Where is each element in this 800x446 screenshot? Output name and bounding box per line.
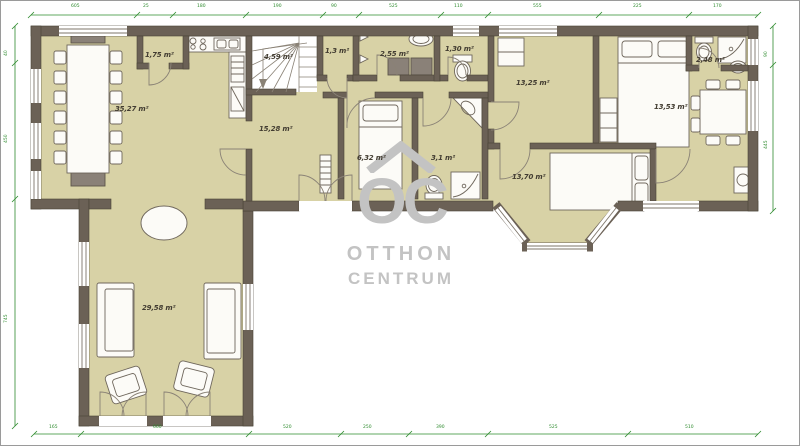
dim-top-4: 190 [273, 4, 282, 9]
living-sofa-right [204, 283, 241, 359]
dim-bottom-6: 525 [549, 425, 558, 430]
bathroom-shower-icon [451, 172, 480, 199]
room-label-room-right: 13,53 m² [654, 103, 687, 111]
dim-bottom-7: 510 [685, 425, 694, 430]
room-label-bathroom2: 2,48 m² [696, 56, 725, 64]
kitchen-sink-icon [214, 38, 240, 50]
dim-top-9: 225 [633, 4, 642, 9]
room-label-hall: 15,28 m² [259, 125, 292, 133]
dim-top-1: 605 [71, 4, 80, 9]
dim-top-7: 110 [454, 4, 463, 9]
room-label-bedroom1: 13,25 m² [516, 79, 549, 87]
room-label-closet: 1,3 m² [325, 47, 349, 55]
room-label-dining-kitchen: 35,27 m² [115, 105, 148, 113]
bedroom1-wardrobe [498, 38, 524, 66]
room-label-bathroom: 3,1 m² [431, 154, 455, 162]
dim-top-8: 555 [533, 4, 542, 9]
floorplan-drawing [1, 1, 800, 446]
room-label-bedroom2: 13,70 m² [512, 173, 545, 181]
dim-right-2: 445 [764, 140, 769, 149]
dim-top-10: 170 [713, 4, 722, 9]
dim-left-1: 40 [4, 50, 9, 56]
bathroom-toilet-icon [425, 176, 443, 200]
dim-bottom-4: 250 [363, 425, 372, 430]
dim-left-2: 450 [4, 134, 9, 143]
dim-top-2: 25 [143, 4, 149, 9]
room-label-laundry: 2,55 m² [380, 50, 409, 58]
room-label-study: 6,32 m² [357, 154, 386, 162]
page: { "watermark": { "logo": "OC", "line1": … [0, 0, 800, 446]
study-bed [359, 101, 402, 189]
room-label-wc: 1,30 m² [445, 45, 474, 53]
dim-top-6: 525 [389, 4, 398, 9]
living-sofa-left [97, 283, 134, 357]
hall-wardrobe [600, 98, 617, 142]
dim-left-3: 745 [4, 314, 9, 323]
dim-bottom-2: 660 [153, 425, 162, 430]
dim-top-5: 90 [331, 4, 337, 9]
dim-right-1: 90 [764, 51, 769, 57]
right-room-bed [618, 37, 689, 147]
dim-bottom-5: 390 [436, 425, 445, 430]
dim-top-3: 180 [197, 4, 206, 9]
dim-bottom-3: 520 [283, 425, 292, 430]
dining-table [67, 45, 109, 173]
room-label-living: 29,58 m² [142, 304, 175, 312]
floorplan-page: 35,27 m² 1,75 m² 4,59 m² 15,28 m² 1,3 m²… [0, 0, 800, 446]
dim-bottom-1: 165 [49, 425, 58, 430]
room-label-pantry: 1,75 m² [145, 51, 174, 59]
living-round-table [141, 206, 187, 240]
room-label-stairs: 4,59 m² [264, 53, 293, 61]
